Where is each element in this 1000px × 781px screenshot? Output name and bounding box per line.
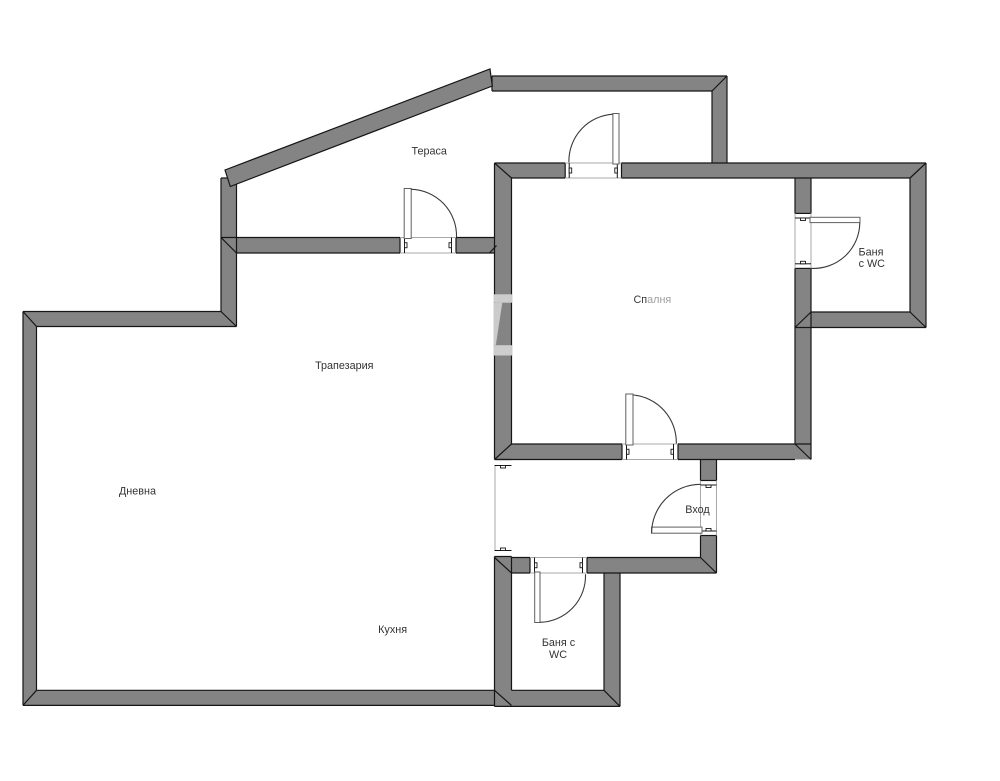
svg-text:Баня с: Баня с bbox=[542, 637, 576, 649]
svg-text:Дневна: Дневна bbox=[119, 485, 156, 497]
svg-text:с WC: с WC bbox=[859, 258, 886, 270]
svg-text:Спалня: Спалня bbox=[634, 294, 672, 306]
svg-text:Трапезария: Трапезария bbox=[315, 360, 374, 372]
svg-text:Баня: Баня bbox=[859, 246, 884, 258]
svg-text:Кухня: Кухня bbox=[378, 624, 407, 636]
svg-text:Вход: Вход bbox=[685, 504, 710, 516]
svg-text:WC: WC bbox=[549, 649, 567, 661]
svg-text:Тераса: Тераса bbox=[411, 146, 446, 158]
